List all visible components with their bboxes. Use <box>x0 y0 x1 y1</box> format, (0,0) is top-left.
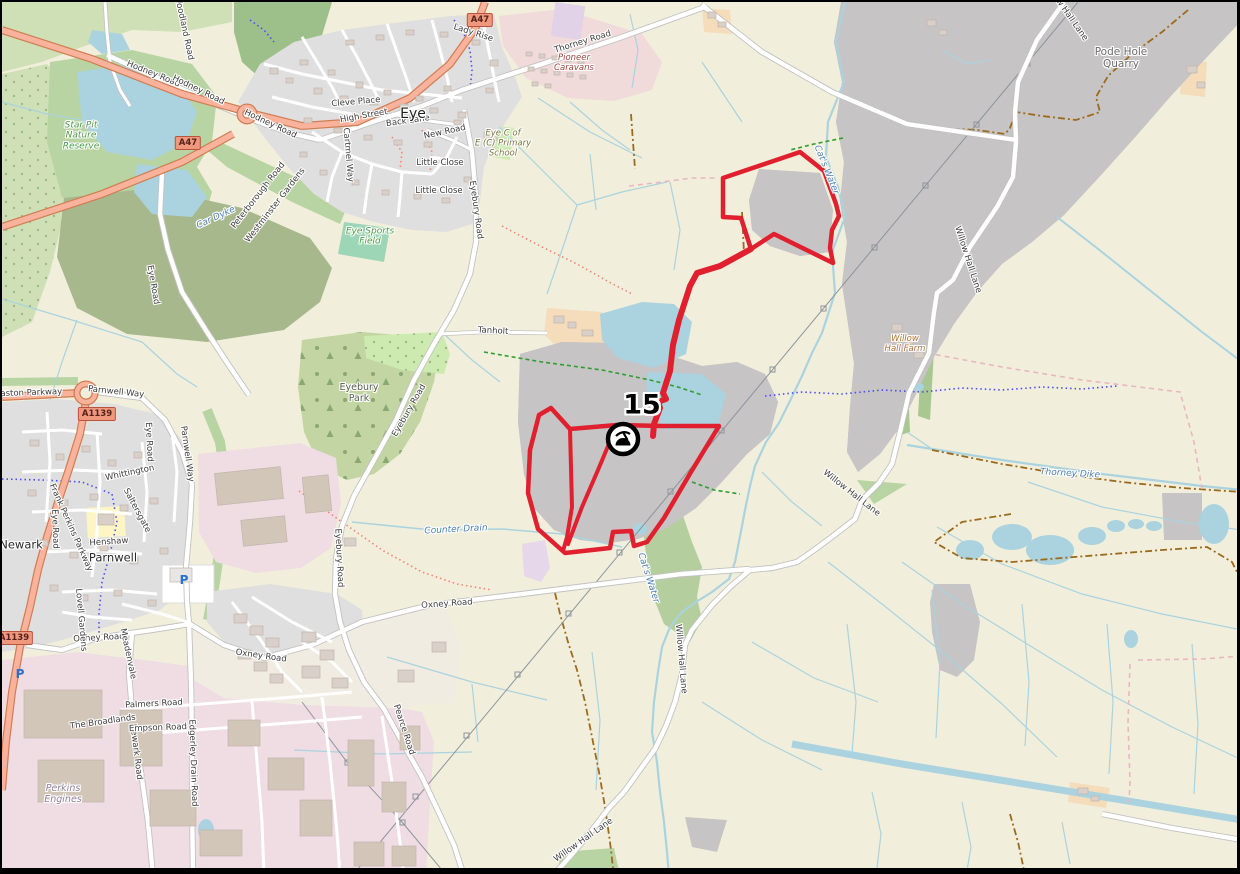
site-marker[interactable] <box>604 420 642 458</box>
map-canvas[interactable]: Woodland RoadHodney RoadHodney RoadHodne… <box>0 0 1240 874</box>
site-marker-label: 15 <box>623 390 661 421</box>
mine-pit-icon <box>604 420 642 458</box>
